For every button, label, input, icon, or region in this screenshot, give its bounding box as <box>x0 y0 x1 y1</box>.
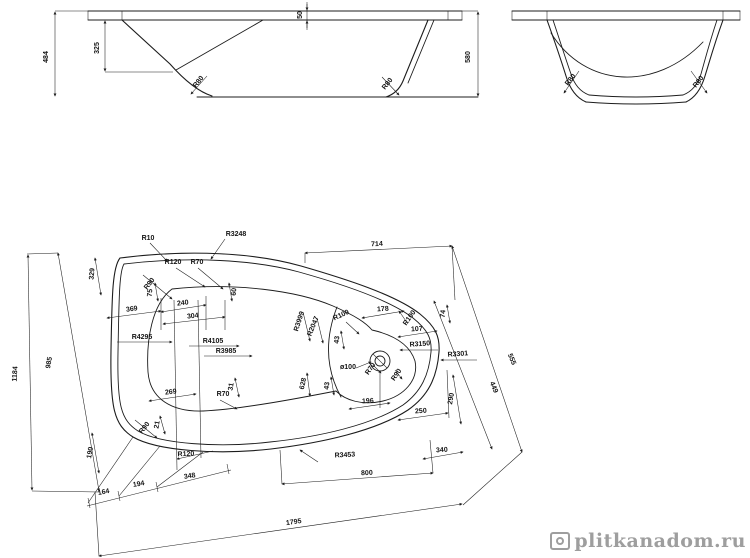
dim-label: R70 <box>217 391 230 398</box>
dim-front-rim-thickness: 50 <box>297 11 304 19</box>
dim-label: 340 <box>436 447 448 455</box>
dim-label: 31 <box>227 382 235 391</box>
dim-label: 74 <box>440 310 448 318</box>
watermark: plitkanadom.ru <box>550 530 746 552</box>
dim-front-radius-right: R80 <box>381 77 394 92</box>
dim-label: 304 <box>187 312 199 320</box>
watermark-logo-icon <box>550 532 570 550</box>
dim-label: 800 <box>361 470 373 478</box>
dim-label: R3248 <box>226 231 247 238</box>
dim-label: R2047 <box>306 315 320 337</box>
dim-label: 240 <box>177 299 189 307</box>
dim-front-right-height: 580 <box>465 51 472 63</box>
dim-label: 164 <box>97 488 110 497</box>
side-section-view: R80 R80 <box>512 11 740 104</box>
dim-label: 178 <box>377 306 389 314</box>
dim-label: R4105 <box>203 338 224 345</box>
dim-label: R3301 <box>447 350 468 358</box>
dim-label: R4295 <box>132 334 153 341</box>
dim-label: 190 <box>86 446 95 459</box>
dim-label: 21 <box>153 420 161 429</box>
dim-label: R90 <box>390 368 403 383</box>
dim-label: R100 <box>332 309 350 322</box>
dim-label: R90 <box>138 421 151 436</box>
dim-label: 250 <box>415 408 427 416</box>
dim-label: R120 <box>165 259 182 266</box>
dim-label: 290 <box>447 392 456 405</box>
dim-label: 196 <box>362 398 374 406</box>
dim-front-inner-depth: 325 <box>94 42 101 54</box>
dim-label: 555 <box>506 353 517 367</box>
front-elevation-view: 484 325 50 580 R80 R80 <box>43 2 478 97</box>
dim-label: 348 <box>183 472 196 481</box>
dim-front-overall-height: 484 <box>43 51 50 63</box>
dim-front-radius-left: R80 <box>192 75 205 90</box>
dim-label: 985 <box>45 356 54 369</box>
bathtub-technical-drawing: 484 325 50 580 R80 R80 R80 R80 <box>0 0 750 558</box>
dim-label: 194 <box>132 480 145 489</box>
dim-label: R3150 <box>409 340 430 348</box>
dim-label: 449 <box>488 381 499 395</box>
watermark-text: plitkanadom.ru <box>574 530 746 552</box>
dim-label: 369 <box>126 305 139 313</box>
dim-label: R3985 <box>216 348 237 355</box>
dim-label: R70 <box>191 259 204 266</box>
dim-label: 329 <box>89 268 97 280</box>
dim-label: 714 <box>371 241 383 248</box>
dim-label: R3453 <box>334 451 355 459</box>
dim-side-radius-right: R80 <box>692 75 705 90</box>
dim-label: 43 <box>334 336 342 344</box>
dim-label: 43 <box>324 382 332 390</box>
technical-drawing-page: 484 325 50 580 R80 R80 R80 R80 <box>0 0 750 558</box>
dim-label: 1795 <box>286 518 303 527</box>
dim-label: ø100 <box>340 364 356 371</box>
dim-label: 107 <box>411 326 423 334</box>
dim-label: R10 <box>142 235 155 242</box>
dim-label: R3999 <box>293 311 306 333</box>
dim-label: 628 <box>299 377 308 390</box>
dim-label: 1184 <box>12 366 20 382</box>
dim-label: R120 <box>177 451 194 459</box>
dim-label: 60 <box>231 288 239 296</box>
dim-label: 269 <box>165 388 177 396</box>
plan-view: R10 R3248 714 329 R120 R70 R90 75 60 369… <box>12 231 522 556</box>
dim-label: 75 <box>147 289 155 297</box>
